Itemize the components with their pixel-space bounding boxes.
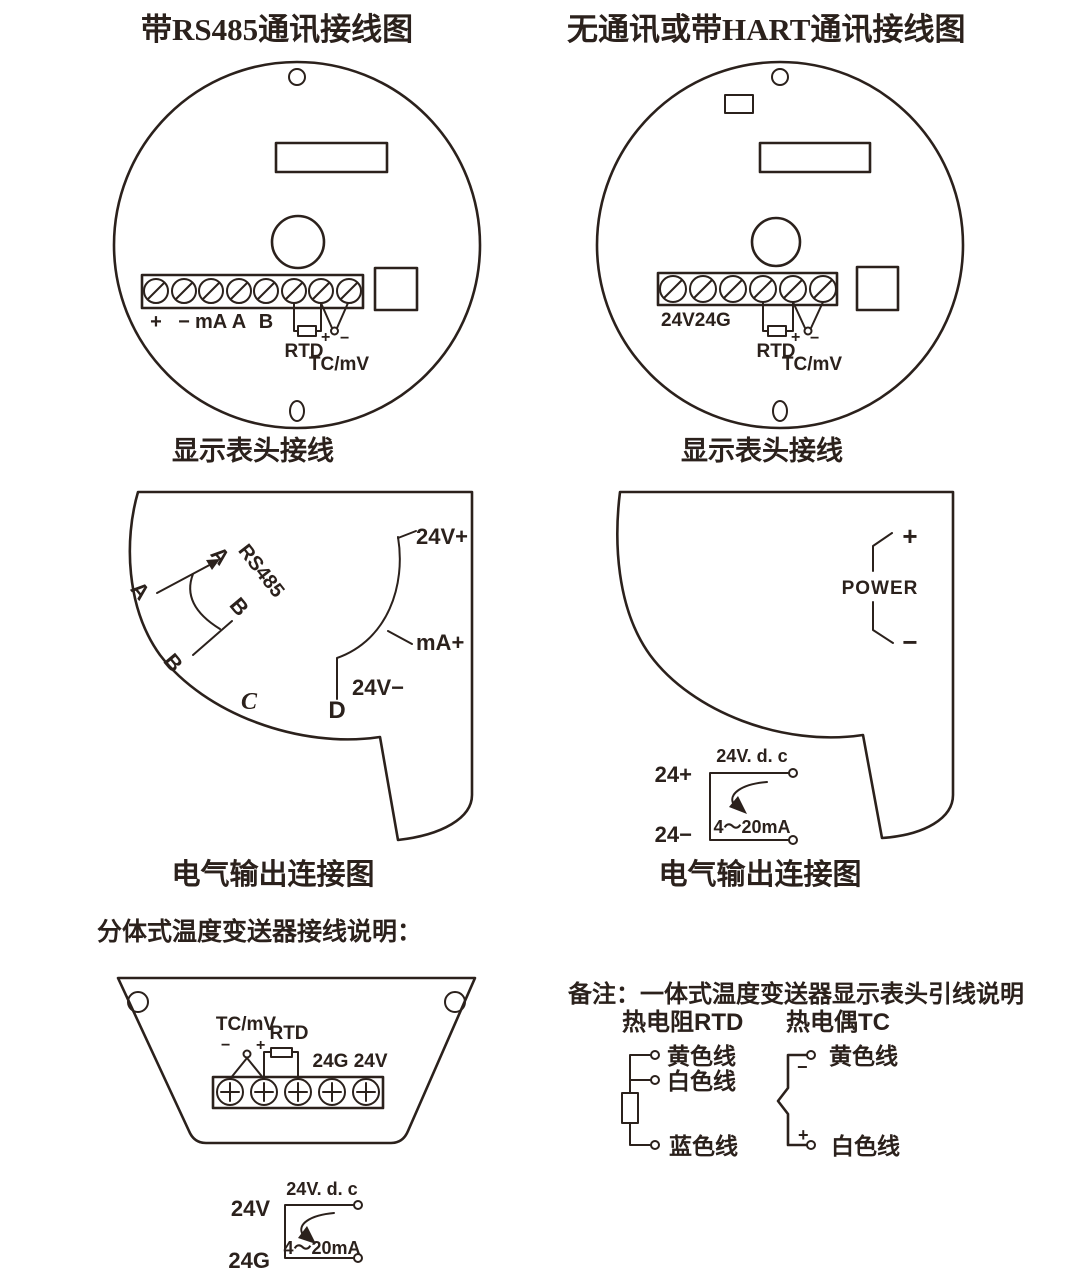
power-label: POWER [831,579,929,598]
tc-minus-label: − [340,331,349,347]
terminal-label-a: A [229,312,249,332]
tc-minus-label: − [221,1038,230,1054]
rtd-resistor [271,1048,292,1057]
loop-pos-label: 24V [218,1198,270,1220]
v-plus-label: 24V+ [416,526,468,548]
note-rtd-symbol [622,1051,659,1149]
power-minus-label: − [897,629,923,655]
ma-plus-leader [388,631,412,644]
tc-minus-label: − [797,1058,808,1076]
rtd-resistor [768,326,786,336]
loop-neg-label: 24G [218,1250,270,1272]
rtd-white-wire-label: 白色线 [667,1070,736,1093]
display-window [760,143,870,172]
tc-plus-label: + [791,330,800,346]
loop-pos-label: 24+ [640,764,692,786]
loop-current-label: 4～20mA [703,818,801,836]
right-head-caption: 显示表头接线 [662,438,862,465]
left-head-caption: 显示表头接线 [172,438,372,465]
power-plus-bracket [873,533,892,571]
terminal-c-label: C [238,690,260,714]
rtd-resistor [298,326,316,336]
left-terminal-head [114,62,480,428]
tc-mv-label: TC/mV [304,355,374,374]
tc-yellow-wire-label: 黄色线 [829,1045,898,1068]
rtd-wire [264,1052,271,1079]
terminal-strip [142,275,363,308]
tag-window [725,95,753,113]
adjust-hole [272,216,324,268]
rtd-blue-wire-label: 蓝色线 [669,1135,738,1158]
terminal-label-minus: − [174,312,194,332]
rtd-yellow-wire-label: 黄色线 [667,1045,736,1068]
split-transmitter-back [118,978,475,1143]
tc-mv-label: TC/mV [777,355,847,374]
note-title: 备注：一体式温度变送器显示表头引线说明 [568,983,1024,1007]
note-tc-title: 热电偶TC [786,1011,890,1035]
loop-neg-label: 24− [640,824,692,846]
split-section-title: 分体式温度变送器接线说明： [97,920,422,945]
terminal-label-b: B [256,312,276,332]
v-minus-label: 24V− [352,677,404,699]
loop-current-label: 4～20mA [273,1239,371,1257]
power-plus-label: + [897,523,923,549]
rs485-b-line [193,621,232,655]
wiring-diagram-page: 带RS485通讯接线图 无通讯或带HART通讯接线图 + − mA A B RT… [0,0,1080,1278]
loop-supply-label: 24V. d. c [273,1180,371,1198]
ma-plus-label: mA+ [416,632,464,654]
connector-block [375,268,417,310]
left-diagram-title: 带RS485通讯接线图 [141,14,413,45]
tc-plus-label: + [256,1038,265,1054]
right-diagram-title: 无通讯或带HART通讯接线图 [567,14,965,45]
left-output-caption: 电气输出连接图 [153,861,393,890]
connector-block [857,267,898,310]
terminal-d-label: D [326,699,348,723]
tc-white-wire-label: 白色线 [831,1135,900,1158]
v-plus-leader [398,531,416,538]
power-terminal-labels: 24G 24V [312,1052,388,1071]
tc-plus-label: + [798,1126,809,1144]
tc-minus-label: − [810,331,819,347]
note-rtd-title: 热电阻RTD [622,1011,743,1035]
right-output-caption: 电气输出连接图 [640,861,880,890]
terminal-label-ma: mA [195,312,227,332]
screw-terminals [217,1079,379,1105]
terminal-label-plus: + [146,312,166,332]
power-terminal-labels: 24V24G [661,311,731,330]
display-window [276,143,387,172]
rs485-arc [190,574,220,629]
rtd-resistor [622,1093,638,1123]
loop-supply-label: 24V. d. c [703,747,801,765]
power-minus-bracket [873,602,893,643]
rtd-label: RTD [267,1024,311,1043]
tc-plus-label: + [321,330,330,346]
screw-terminals [660,276,836,302]
rs485-a-line [157,561,217,593]
screw-terminals [144,279,361,303]
adjust-hole [752,218,800,266]
